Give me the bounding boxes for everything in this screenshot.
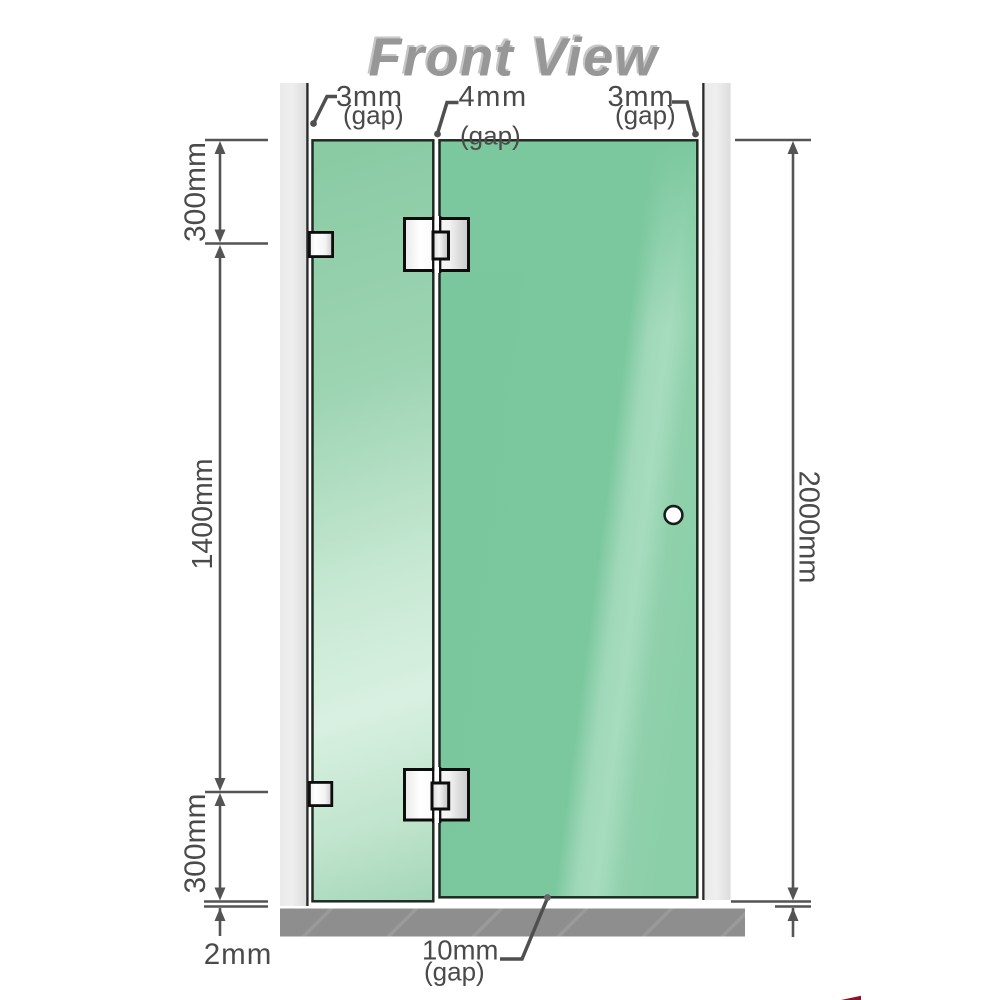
svg-text:(gap): (gap) (343, 100, 404, 130)
svg-text:1400mm: 1400mm (187, 459, 219, 570)
svg-text:300mm: 300mm (179, 142, 212, 242)
svg-text:(gap): (gap) (615, 100, 676, 130)
svg-text:4mm: 4mm (459, 81, 528, 113)
svg-text:2mm: 2mm (204, 938, 273, 971)
svg-text:Front View: Front View (368, 28, 659, 88)
svg-text:(gap): (gap) (424, 957, 485, 987)
svg-text:2000mm: 2000mm (793, 471, 825, 584)
svg-text:(gap): (gap) (460, 121, 521, 151)
svg-text:300mm: 300mm (179, 793, 212, 893)
